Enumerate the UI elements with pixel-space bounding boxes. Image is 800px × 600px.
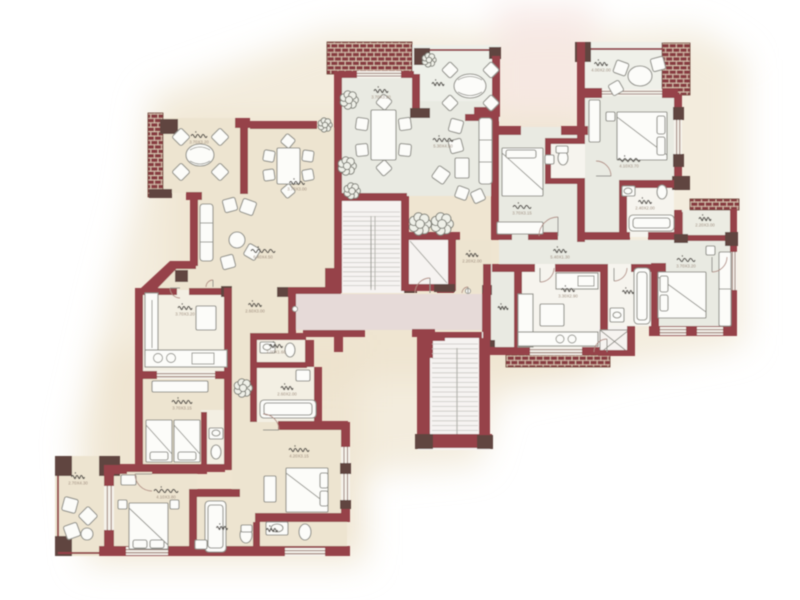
svg-text:2.60X3.00: 2.60X3.00	[245, 309, 265, 314]
svg-text:3.70X3.20: 3.70X3.20	[175, 312, 195, 317]
svg-text:5.30X4.50: 5.30X4.50	[433, 144, 453, 149]
svg-text:2.20X3.00: 2.20X3.00	[695, 223, 715, 228]
svg-text:4.10X3.80: 4.10X3.80	[156, 495, 176, 500]
svg-text:3.70X3.20: 3.70X3.20	[189, 140, 209, 145]
svg-text:5.40X1.30: 5.40X1.30	[550, 255, 570, 260]
svg-text:3.70X3.15: 3.70X3.15	[512, 211, 532, 216]
svg-text:4.20X3.15: 4.20X3.15	[289, 454, 309, 459]
svg-text:3.30X2.90: 3.30X2.90	[558, 294, 578, 299]
svg-text:4.00X2.00: 4.00X2.00	[591, 68, 611, 73]
svg-text:2.60X2.00: 2.60X2.00	[277, 392, 297, 397]
svg-text:4.10X3.70: 4.10X3.70	[619, 164, 639, 169]
svg-text:3.70X3.00: 3.70X3.00	[287, 187, 307, 192]
svg-text:6.40X4.50: 6.40X4.50	[253, 255, 273, 260]
svg-text:3.70X3.15: 3.70X3.15	[172, 406, 192, 411]
svg-text:3.70X3.20: 3.70X3.20	[371, 95, 391, 100]
svg-text:3.70X3.20: 3.70X3.20	[676, 264, 696, 269]
svg-text:2.20X2.00: 2.20X2.00	[462, 259, 482, 264]
svg-text:2.70X4.30: 2.70X4.30	[68, 481, 88, 486]
svg-text:2.40X2.00: 2.40X2.00	[635, 206, 655, 211]
svg-text:2.00X1.60: 2.00X1.60	[266, 350, 286, 355]
